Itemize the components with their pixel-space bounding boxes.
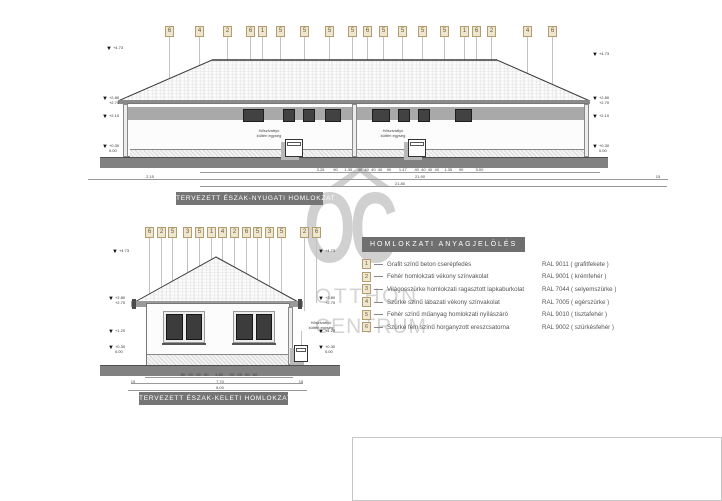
material-marker: 4 <box>523 26 532 37</box>
legend-row: 1 Grafit színű beton cserépfedés RAL 901… <box>362 258 660 271</box>
elevation-ne-title: TERVEZETT ÉSZAK-KELETI HOMLOKZAT <box>139 392 288 405</box>
material-marker: 1 <box>460 26 469 37</box>
legend-row: 5 Fehér színű műanyag homlokzati nyílász… <box>362 308 660 321</box>
material-marker: 5 <box>276 26 285 37</box>
legend-number-box: 4 <box>362 297 371 307</box>
level-marker: ▼+2.10 <box>592 114 609 120</box>
heat-pump-label-line2: kültéri egység <box>257 133 282 138</box>
legend-description: Fehér homlokzati vékony színvakolat <box>387 273 542 280</box>
legend-ral-code: RAL 7005 ( egérszürke ) <box>542 299 660 306</box>
dimension-segments: 3.25 90 1.35 40 40 40 40 90 1.47 40 40 4… <box>200 167 600 172</box>
legend-description: Fehér színű műanyag homlokzati nyílászár… <box>387 311 542 318</box>
heat-pump-label-line2: kültéri egység <box>381 133 406 138</box>
level-triangle-icon: ▼ <box>318 296 324 302</box>
window <box>303 109 315 122</box>
level-marker: ▼+4.73 <box>318 249 335 255</box>
plinth-nw <box>130 149 585 157</box>
material-marker: 5 <box>168 227 177 238</box>
material-marker: 5 <box>418 26 427 37</box>
level-marker: ▼+2.10 <box>102 114 119 120</box>
material-marker: 1 <box>258 26 267 37</box>
window-sill <box>232 343 276 345</box>
dimension-line <box>128 390 307 391</box>
level-marker: ▼+2.80+2.70 <box>318 296 335 305</box>
level-triangle-icon: ▼ <box>102 114 108 120</box>
heat-pump-unit <box>285 139 303 157</box>
legend-ral-code: RAL 9002 ( szürkésfehér ) <box>542 324 660 331</box>
level-marker: ▼+0.300.00 <box>318 345 335 354</box>
legend-leader <box>374 327 383 328</box>
material-marker: 4 <box>195 26 204 37</box>
material-marker: 6 <box>165 26 174 37</box>
level-triangle-icon: ▼ <box>108 329 114 335</box>
material-marker: 2 <box>230 227 239 238</box>
level-triangle-icon: ▼ <box>592 114 598 120</box>
level-marker: ▼+4.73 <box>112 249 129 255</box>
level-triangle-icon: ▼ <box>592 96 598 102</box>
material-marker: 5 <box>300 26 309 37</box>
level-marker: ▼+2.80+2.70 <box>108 296 125 305</box>
leader-line <box>301 331 302 345</box>
wall-band-nw <box>127 107 588 120</box>
legend-leader <box>374 264 383 265</box>
level-triangle-icon: ▼ <box>106 46 112 52</box>
window <box>243 109 264 122</box>
downspout <box>288 307 293 365</box>
material-marker: 1 <box>207 227 216 238</box>
legend-description: Szürke színű lábazati vékony színvakolat <box>387 299 542 306</box>
level-triangle-icon: ▼ <box>102 144 108 150</box>
material-marker: 5 <box>440 26 449 37</box>
heat-pump-unit <box>294 345 308 362</box>
legend-ral-code: RAL 9011 ( grafitfekete ) <box>542 261 660 268</box>
dimension-line <box>200 172 600 173</box>
level-triangle-icon: ▼ <box>592 144 598 150</box>
level-marker: ▼+0.300.00 <box>592 144 609 153</box>
legend-ral-code: RAL 9001 ( krémfehér ) <box>542 273 660 280</box>
dimension-value: 15 <box>648 174 668 179</box>
corner-board <box>132 299 136 309</box>
material-marker: 5 <box>398 26 407 37</box>
window-sash <box>256 314 273 340</box>
dimension-total: 8.00 <box>180 385 260 390</box>
legend-row: 2 Fehér homlokzati vékony színvakolat RA… <box>362 271 660 284</box>
level-marker: ▼+1.20 <box>318 329 335 335</box>
title-block <box>352 437 722 501</box>
material-marker: 6 <box>242 227 251 238</box>
dimension-value: 15 <box>126 379 140 384</box>
roof-ne <box>126 250 316 306</box>
elevation-nw-title: TERVEZETT ÉSZAK-NYUGATI HOMLOKZAT <box>176 192 323 205</box>
legend-description: Világosszürke homlokzati ragasztott lapk… <box>387 286 542 293</box>
downspout <box>123 104 128 157</box>
window <box>455 109 472 122</box>
level-marker: ▼+4.73 <box>592 52 609 58</box>
heat-pump-label: Hőszivattyú kültéri egység <box>372 128 414 138</box>
window-sash <box>166 314 183 340</box>
window <box>398 109 410 122</box>
legend-leader <box>374 302 383 303</box>
material-marker: 2 <box>157 227 166 238</box>
legend-row: 6 Szürke fém színű horganyzott ereszcsat… <box>362 321 660 334</box>
dimension-segments: 80 90 25 90 1.80 90 25 90 80 <box>145 372 293 377</box>
window-group <box>163 311 205 343</box>
material-marker: 2 <box>223 26 232 37</box>
roof-nw <box>104 52 604 106</box>
dimension-value: 15 <box>294 379 308 384</box>
dimension-line <box>145 377 293 378</box>
window-sill <box>162 343 206 345</box>
dimension-total: 21.90 <box>380 174 460 179</box>
legend-row: 4 Szürke színű lábazati vékony színvakol… <box>362 296 660 309</box>
material-marker: 6 <box>548 26 557 37</box>
material-marker: 5 <box>253 227 262 238</box>
material-legend: HOMLOKZATI ANYAGJELÖLÉS 1 Grafit színű b… <box>362 233 660 334</box>
material-marker: 5 <box>348 26 357 37</box>
material-marker: 5 <box>379 26 388 37</box>
dimension-total: 21.80 <box>360 181 440 186</box>
legend-leader <box>374 276 383 277</box>
material-marker: 5 <box>325 26 334 37</box>
downspout <box>352 104 357 157</box>
material-marker: 3 <box>265 227 274 238</box>
window <box>372 109 390 122</box>
level-marker: ▼+1.20 <box>108 329 125 335</box>
level-triangle-icon: ▼ <box>102 96 108 102</box>
window-group <box>233 311 275 343</box>
heat-pump-unit <box>408 139 426 157</box>
corner-board <box>298 299 302 309</box>
window <box>418 109 430 122</box>
legend-number-box: 2 <box>362 272 371 282</box>
material-marker: 2 <box>300 227 309 238</box>
material-marker: 6 <box>145 227 154 238</box>
material-marker: 5 <box>277 227 286 238</box>
legend-ral-code: RAL 7044 ( selyemszürke ) <box>542 286 660 293</box>
window <box>283 109 295 122</box>
dimension-line <box>200 186 667 187</box>
level-marker: ▼+2.80+2.70 <box>102 96 119 105</box>
legend-number-box: 1 <box>362 259 371 269</box>
window <box>325 109 341 122</box>
legend-title: HOMLOKZATI ANYAGJELÖLÉS <box>362 237 525 252</box>
leader-line <box>316 238 317 303</box>
level-triangle-icon: ▼ <box>318 329 324 335</box>
material-marker: 2 <box>487 26 496 37</box>
legend-ral-code: RAL 9010 ( tisztafehér ) <box>542 311 660 318</box>
window-sash <box>236 314 253 340</box>
material-marker: 4 <box>218 227 227 238</box>
level-triangle-icon: ▼ <box>318 249 324 255</box>
dimension-total: 7.70 <box>180 379 260 384</box>
material-marker: 6 <box>363 26 372 37</box>
legend-row: 3 Világosszürke homlokzati ragasztott la… <box>362 283 660 296</box>
material-marker: 6 <box>312 227 321 238</box>
legend-description: Grafit színű beton cserépfedés <box>387 261 542 268</box>
level-marker: ▼+0.300.00 <box>102 144 119 153</box>
level-triangle-icon: ▼ <box>108 345 114 351</box>
legend-leader <box>374 314 383 315</box>
level-triangle-icon: ▼ <box>318 345 324 351</box>
level-marker: ▼+0.300.00 <box>108 345 125 354</box>
downspout <box>584 104 589 157</box>
level-marker: ▼+2.80+2.70 <box>592 96 609 105</box>
material-marker: 6 <box>472 26 481 37</box>
level-marker: ▼+4.73 <box>106 46 123 52</box>
level-triangle-icon: ▼ <box>592 52 598 58</box>
legend-description: Szürke fém színű horganyzott ereszcsator… <box>387 324 542 331</box>
window-sash <box>186 314 203 340</box>
level-triangle-icon: ▼ <box>108 296 114 302</box>
material-marker: 3 <box>183 227 192 238</box>
material-marker: 6 <box>246 26 255 37</box>
legend-number-box: 5 <box>362 310 371 320</box>
legend-leader <box>374 289 383 290</box>
dimension-line <box>88 179 668 180</box>
legend-number-box: 3 <box>362 284 371 294</box>
legend-number-box: 6 <box>362 322 371 332</box>
material-marker: 5 <box>195 227 204 238</box>
plinth-ne <box>147 354 288 365</box>
level-triangle-icon: ▼ <box>112 249 118 255</box>
dimension-value: 2.15 <box>120 174 180 179</box>
heat-pump-label: Hőszivattyú kültéri egység <box>248 128 290 138</box>
